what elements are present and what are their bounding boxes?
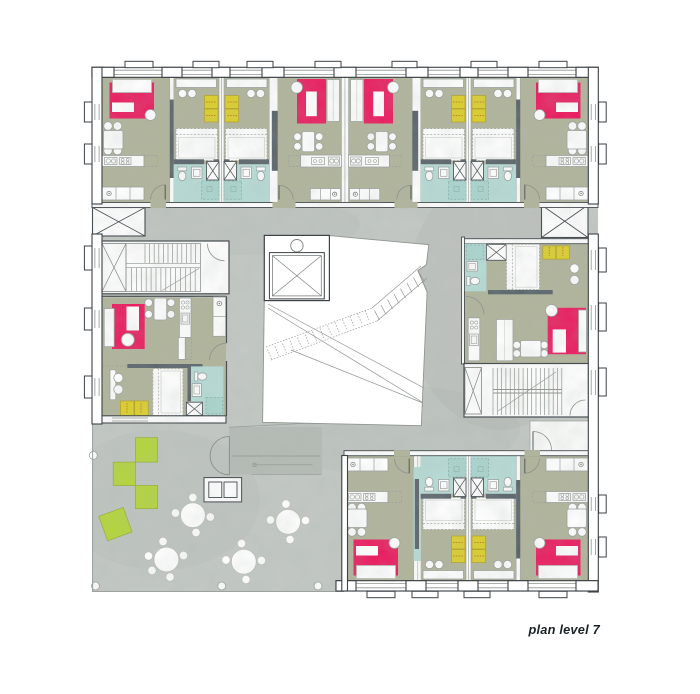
svg-text:plan level 7: plan level 7	[528, 622, 601, 637]
